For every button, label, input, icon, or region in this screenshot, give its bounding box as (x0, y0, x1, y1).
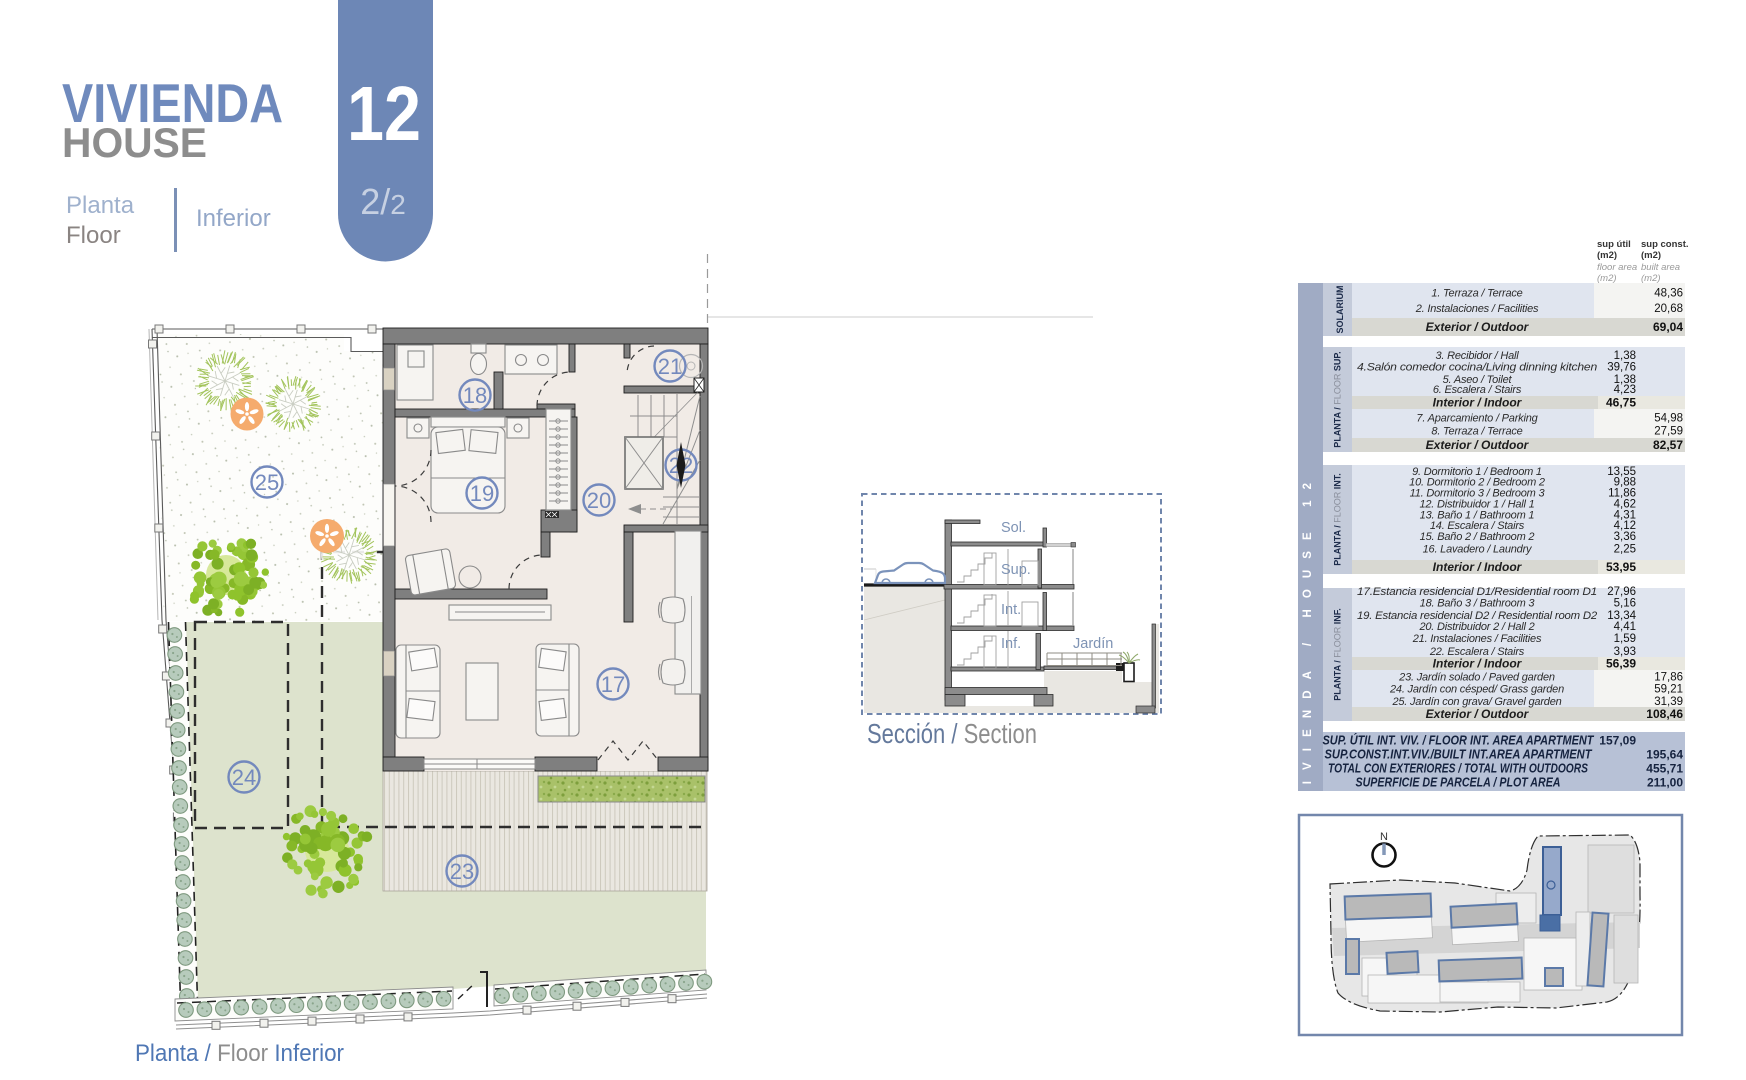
svg-text:N: N (1380, 831, 1388, 843)
svg-text:17: 17 (601, 672, 625, 697)
svg-text:20. Distribuidor 2 / Hall 2: 20. Distribuidor 2 / Hall 2 (1418, 621, 1534, 633)
svg-text:Inf.: Inf. (1001, 636, 1021, 652)
svg-text:Sol.: Sol. (1001, 520, 1026, 536)
svg-text:19: 19 (470, 481, 494, 506)
svg-text:built area: built area (1641, 262, 1680, 273)
svg-text:4.Salón comedor cocina/Living: 4.Salón comedor cocina/Living dinning ki… (1357, 362, 1597, 374)
svg-text:157,09: 157,09 (1599, 734, 1636, 748)
svg-text:24: 24 (232, 765, 256, 790)
svg-text:27,96: 27,96 (1607, 586, 1636, 598)
svg-text:4,41: 4,41 (1614, 621, 1636, 633)
svg-text:53,95: 53,95 (1606, 560, 1636, 574)
svg-text:6. Escalera / Stairs: 6. Escalera / Stairs (1433, 384, 1522, 396)
svg-text:Jardín: Jardín (1073, 636, 1113, 652)
svg-text:1,59: 1,59 (1614, 633, 1636, 645)
svg-text:24. Jardín con césped/ Grass g: 24. Jardín con césped/ Grass garden (1389, 683, 1564, 695)
svg-text:SUP. ÚTIL INT. VIV. / FLOOR IN: SUP. ÚTIL INT. VIV. / FLOOR INT. AREA AP… (1323, 733, 1595, 748)
svg-text:20,68: 20,68 (1654, 303, 1683, 315)
svg-text:69,04: 69,04 (1653, 320, 1683, 334)
svg-text:15. Baño 2 / Bathroom 2: 15. Baño 2 / Bathroom 2 (1420, 531, 1535, 543)
svg-text:1. Terraza / Terrace: 1. Terraza / Terrace (1431, 288, 1522, 300)
svg-text:20: 20 (587, 488, 611, 513)
svg-text:SOLARIUM: SOLARIUM (1335, 286, 1345, 334)
svg-text:Floor: Floor (66, 222, 121, 249)
svg-text:Planta / Floor Inferior: Planta / Floor Inferior (135, 1040, 344, 1067)
svg-text:Interior / Indoor: Interior / Indoor (1433, 657, 1523, 671)
svg-text:31,39: 31,39 (1654, 696, 1683, 708)
svg-text:16. Lavadero / Laundry: 16. Lavadero / Laundry (1423, 543, 1533, 555)
svg-text:82,57: 82,57 (1653, 438, 1683, 452)
svg-text:3,36: 3,36 (1614, 531, 1636, 543)
svg-text:PLANTA / FLOOR SUP.: PLANTA / FLOOR SUP. (1333, 351, 1343, 447)
svg-text:17.Estancia residencial D1/Res: 17.Estancia residencial D1/Residential r… (1357, 586, 1597, 598)
svg-text:2. Instalaciones / Facilities: 2. Instalaciones / Facilities (1415, 303, 1539, 315)
svg-text:23. Jardín solado / Paved gard: 23. Jardín solado / Paved garden (1398, 672, 1555, 684)
svg-text:8. Terraza / Terrace: 8. Terraza / Terrace (1431, 426, 1522, 438)
svg-text:17,86: 17,86 (1654, 672, 1683, 684)
svg-text:HOUSE: HOUSE (62, 119, 207, 166)
svg-text:56,39: 56,39 (1606, 657, 1636, 671)
svg-text:25. Jardín con grava/ Gravel g: 25. Jardín con grava/ Gravel garden (1391, 696, 1561, 708)
svg-text:21. Instalaciones / Facilities: 21. Instalaciones / Facilities (1412, 633, 1542, 645)
svg-text:54,98: 54,98 (1654, 413, 1683, 425)
svg-text:Interior / Indoor: Interior / Indoor (1433, 560, 1523, 574)
svg-text:TOTAL CON EXTERIORES / TOTAL W: TOTAL CON EXTERIORES / TOTAL WITH OUTDOO… (1328, 761, 1588, 776)
svg-text:(m2): (m2) (1597, 250, 1617, 261)
svg-text:23: 23 (450, 859, 474, 884)
svg-text:Inferior: Inferior (196, 205, 271, 232)
svg-text:Sup.: Sup. (1001, 562, 1031, 578)
svg-text:(m2): (m2) (1597, 273, 1617, 284)
svg-text:18. Baño 3 / Bathroom 3: 18. Baño 3 / Bathroom 3 (1420, 598, 1536, 610)
svg-text:25: 25 (255, 470, 279, 495)
svg-text:11,86: 11,86 (1608, 487, 1636, 499)
svg-text:7. Aparcamiento / Parking: 7. Aparcamiento / Parking (1416, 413, 1538, 425)
svg-text:11. Dormitorio 3 / Bedroom 3: 11. Dormitorio 3 / Bedroom 3 (1410, 487, 1546, 499)
svg-text:59,21: 59,21 (1654, 683, 1683, 695)
svg-text:Exterior / Outdoor: Exterior / Outdoor (1426, 438, 1530, 452)
svg-text:floor area: floor area (1597, 262, 1637, 273)
svg-text:46,75: 46,75 (1606, 396, 1636, 410)
svg-text:27,59: 27,59 (1654, 426, 1683, 438)
svg-text:(m2): (m2) (1641, 250, 1661, 261)
svg-text:Sección / Section: Sección / Section (867, 718, 1037, 749)
svg-text:PLANTA / FLOOR INT.: PLANTA / FLOOR INT. (1333, 473, 1343, 566)
svg-text:18: 18 (463, 383, 487, 408)
svg-text:195,64: 195,64 (1646, 748, 1683, 762)
svg-text:(m2): (m2) (1641, 273, 1661, 284)
svg-text:Int.: Int. (1001, 602, 1021, 618)
svg-text:Planta: Planta (66, 192, 135, 219)
svg-text:Exterior / Outdoor: Exterior / Outdoor (1426, 320, 1530, 334)
svg-text:PLANTA / FLOOR INF.: PLANTA / FLOOR INF. (1333, 608, 1343, 701)
svg-text:48,36: 48,36 (1654, 288, 1683, 300)
svg-text:211,00: 211,00 (1647, 776, 1683, 790)
svg-text:21: 21 (658, 354, 682, 379)
svg-text:SUPERFICIE DE PARCELA / PLOT A: SUPERFICIE DE PARCELA / PLOT AREA (1356, 775, 1561, 790)
svg-text:455,71: 455,71 (1646, 762, 1683, 776)
svg-text:108,46: 108,46 (1646, 707, 1683, 721)
svg-text:3. Recibidor / Hall: 3. Recibidor / Hall (1435, 350, 1519, 362)
svg-text:4,23: 4,23 (1614, 384, 1636, 396)
svg-text:sup útil: sup útil (1597, 239, 1631, 250)
svg-text:2,25: 2,25 (1614, 543, 1636, 555)
svg-text:sup const.: sup const. (1641, 239, 1689, 250)
svg-text:Exterior / Outdoor: Exterior / Outdoor (1426, 707, 1530, 721)
svg-text:Interior / Indoor: Interior / Indoor (1433, 396, 1523, 410)
svg-text:SUP.CONST.INT.VIV./BUILT INT.A: SUP.CONST.INT.VIV./BUILT INT.AREA APARTM… (1325, 747, 1593, 762)
svg-text:5,16: 5,16 (1614, 598, 1636, 610)
svg-text:1,38: 1,38 (1614, 350, 1636, 362)
svg-text:12: 12 (347, 71, 421, 157)
svg-text:39,76: 39,76 (1607, 362, 1636, 374)
